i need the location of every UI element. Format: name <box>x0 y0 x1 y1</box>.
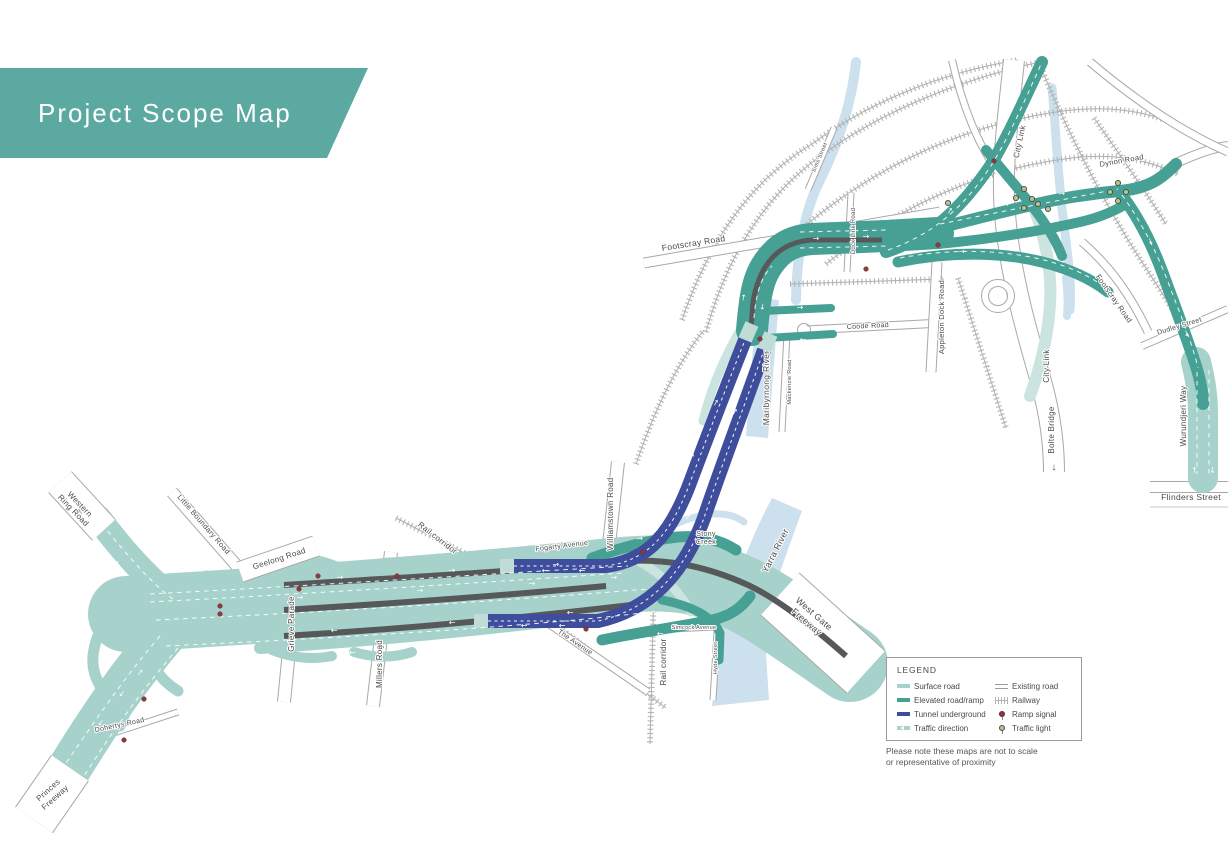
traffic-arrow-icon: → <box>416 586 423 595</box>
traffic-light-icon <box>1013 195 1018 200</box>
ramp-signal-icon <box>584 627 589 632</box>
traffic-light-icon <box>1021 186 1026 191</box>
label-mackenzie-road: Mackenzie Road <box>787 359 793 404</box>
label-bolte-bridge: Bolte Bridge <box>1047 406 1056 453</box>
label-rail-corridor-nw: Rail corridor <box>416 520 459 556</box>
traffic-arrow-icon: → <box>796 303 803 312</box>
legend-item-label: Railway <box>1012 696 1040 705</box>
note-line: Please note these maps are not to scale <box>886 746 1106 757</box>
existing-road-swatch <box>995 684 1008 689</box>
scale-disclaimer-note: Please note these maps are not to scale … <box>886 746 1106 768</box>
legend-item-traffic-light: Traffic light <box>995 721 1073 735</box>
traffic-arrow-icon: → <box>610 573 617 582</box>
ramp-signal-icon <box>142 697 147 702</box>
traffic-light-icon <box>945 200 950 205</box>
ramp-signal-icon <box>218 612 223 617</box>
legend-item-tunnel-underground: Tunnel underground <box>897 707 995 721</box>
tunnel-swatch <box>897 712 910 716</box>
traffic-light-icon <box>1115 180 1120 185</box>
traffic-light-icon <box>1123 189 1128 194</box>
traffic-arrow-icon: → <box>348 648 355 657</box>
traffic-arrow-icon: → <box>541 566 548 575</box>
traffic-arrow-icon: → <box>656 629 664 639</box>
label-simcock-avenue: Simcock Avenue <box>672 625 717 631</box>
legend-item-label: Existing road <box>1012 682 1058 691</box>
traffic-arrow-icon: → <box>296 593 303 602</box>
ramp-signal-icon <box>936 243 941 248</box>
traffic-arrow-icon: → <box>448 618 455 627</box>
label-maribyrnong-river: Maribyrnong River <box>761 351 771 426</box>
traffic-arrow-icon: → <box>330 626 337 635</box>
traffic-light-icon <box>1107 189 1112 194</box>
ramp-signal-icon <box>297 587 302 592</box>
traffic-light-icon <box>1029 196 1034 201</box>
ramp-signal-icon <box>122 738 127 743</box>
ramp-signal-icon <box>218 604 223 609</box>
label-stony-creek: Creek <box>696 539 716 546</box>
traffic-arrow-icon: → <box>336 573 343 582</box>
legend-item-ramp-signal: Ramp signal <box>995 707 1073 721</box>
legend-item-label: Traffic light <box>1012 724 1051 733</box>
legend-box: LEGEND Surface road Elevated road/ramp T… <box>886 657 1082 741</box>
elevated-road-swatch <box>897 698 910 702</box>
legend-item-label: Traffic direction <box>914 724 968 733</box>
traffic-arrow-icon: → <box>1190 466 1199 473</box>
legend-item-railway: Railway <box>995 693 1073 707</box>
label-grieve-parade: Grieve Parade <box>287 596 296 652</box>
label-williamstown-road: Williamstown Road <box>606 477 615 550</box>
label-millers-road: Millers Road <box>375 640 384 688</box>
legend-item-existing-road: Existing road <box>995 679 1073 693</box>
ramp-signal-icon <box>758 337 763 342</box>
traffic-arrow-icon: → <box>448 566 455 575</box>
ramp-signal-icon <box>395 574 400 579</box>
railway-swatch <box>995 697 1008 704</box>
traffic-light-icon <box>1045 206 1050 211</box>
ramp-signal-icon <box>992 159 997 164</box>
traffic-light-icon <box>1021 205 1026 210</box>
label-flinders-street: Flinders Street <box>1161 492 1221 502</box>
legend-item-label: Surface road <box>914 682 960 691</box>
ramp-signal-icon <box>999 711 1005 717</box>
legend-item-label: Tunnel underground <box>914 710 986 719</box>
note-line: or representative of proximity <box>886 757 1106 768</box>
traffic-arrow-icon: → <box>466 640 473 649</box>
label-city-link-south: City Link <box>1042 349 1051 383</box>
legend-title: LEGEND <box>897 665 1073 675</box>
legend-item-surface-road: Surface road <box>897 679 995 693</box>
ramp-signal-icon <box>864 267 869 272</box>
label-the-avenue: The Avenue <box>556 629 593 657</box>
label-dock-link-road: Dock Link Road <box>851 208 857 255</box>
bolte-bridge-direction-icon: ↓ <box>1051 462 1056 473</box>
traffic-arrow-icon: → <box>958 247 966 257</box>
legend-item-label: Elevated road/ramp <box>914 696 984 705</box>
citylink-creek-3 <box>1066 278 1068 316</box>
ramp-signal-icon <box>316 574 321 579</box>
traffic-direction-swatch <box>897 726 910 730</box>
traffic-arrow-icon: → <box>635 533 643 543</box>
traffic-arrow-icon: → <box>1208 467 1217 474</box>
surface-road-swatch <box>897 684 910 688</box>
page-title: Project Scope Map <box>38 98 292 128</box>
traffic-arrow-icon: → <box>520 621 527 630</box>
legend-item-elevated-road-ramp: Elevated road/ramp <box>897 693 995 707</box>
label-little-boundary-road: Little Boundary Road <box>176 493 233 556</box>
traffic-light-icon <box>1035 201 1040 206</box>
traffic-light-icon <box>999 725 1005 731</box>
legend-items: Surface road Elevated road/ramp Tunnel u… <box>897 679 1073 735</box>
traffic-light-icon <box>1115 198 1120 203</box>
traffic-arrow-icon: → <box>566 608 573 617</box>
label-wurundjeri-way: Wurundjeri Way <box>1179 386 1188 447</box>
traffic-arrow-icon: → <box>812 234 819 243</box>
label-hyde-street: Hyde Street <box>713 642 719 675</box>
traffic-arrow-icon: → <box>799 335 806 344</box>
label-dynon-road: Dynon Road <box>1099 152 1145 169</box>
traffic-arrow-icon: → <box>528 579 535 588</box>
label-stony-creek: Stony <box>696 531 716 538</box>
project-scope-map-page: → → → → → → → → → → → → → → → → → → → → … <box>0 0 1228 868</box>
legend-item-label: Ramp signal <box>1012 710 1056 719</box>
ramp-signal-icon <box>641 550 646 555</box>
traffic-arrow-icon: → <box>820 256 827 265</box>
traffic-arrow-icon: → <box>552 560 559 569</box>
label-appleton-dock-road: Appleton Dock Road <box>937 280 946 354</box>
label-rail-corridor-south: Rail corridor <box>659 638 668 685</box>
title-banner: Project Scope Map <box>0 68 368 158</box>
traffic-arrow-icon: → <box>862 232 869 241</box>
legend-item-traffic-direction: Traffic direction <box>897 721 995 735</box>
traffic-arrow-icon: → <box>578 566 585 575</box>
